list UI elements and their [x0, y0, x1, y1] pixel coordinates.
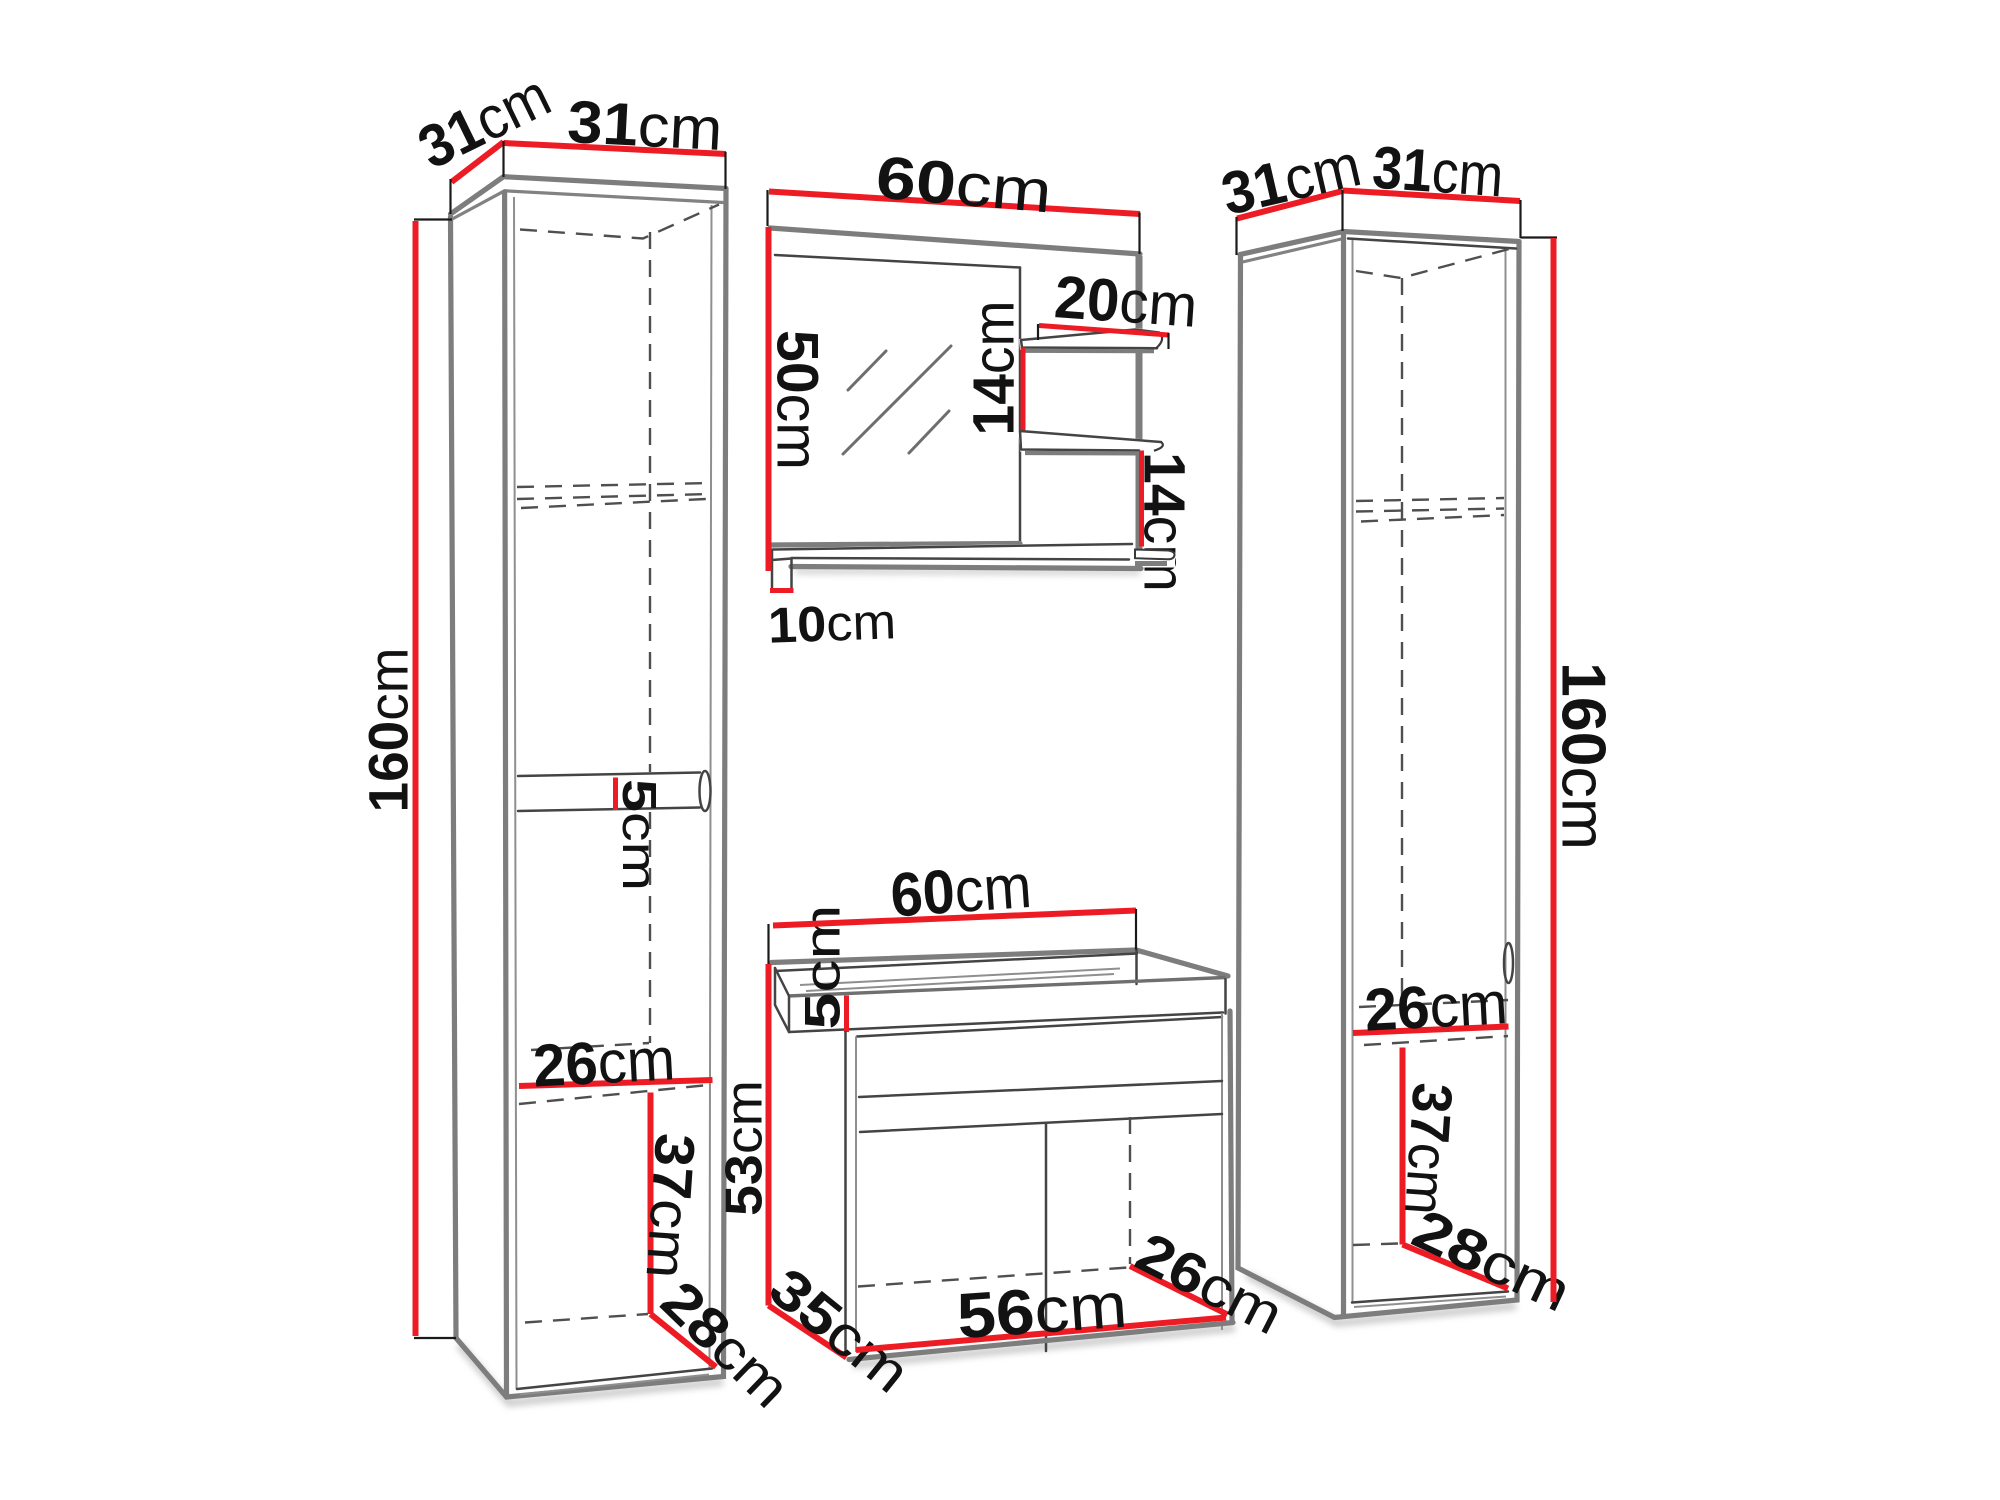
svg-text:20cm: 20cm	[1052, 263, 1199, 340]
svg-text:31cm: 31cm	[1370, 134, 1505, 210]
svg-text:31cm: 31cm	[566, 88, 724, 163]
svg-text:160cm: 160cm	[357, 648, 420, 813]
svg-text:53cm: 53cm	[716, 1080, 774, 1216]
svg-text:26cm: 26cm	[1363, 969, 1509, 1043]
svg-text:26cm: 26cm	[531, 1025, 676, 1099]
svg-text:14cm: 14cm	[961, 301, 1026, 436]
svg-text:37cm: 37cm	[634, 1131, 707, 1280]
svg-text:10cm: 10cm	[767, 593, 897, 653]
svg-text:56cm: 56cm	[955, 1269, 1130, 1353]
svg-text:60cm: 60cm	[888, 852, 1033, 931]
svg-text:5cm: 5cm	[612, 779, 665, 891]
svg-text:160cm: 160cm	[1548, 662, 1617, 850]
svg-text:50cm: 50cm	[765, 330, 830, 470]
